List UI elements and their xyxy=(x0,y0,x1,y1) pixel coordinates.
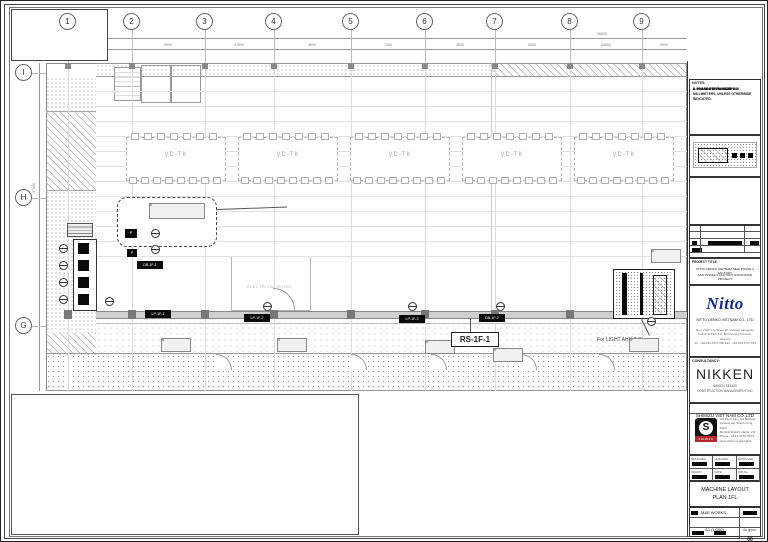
machine-unit xyxy=(532,133,540,140)
info-value-redacted xyxy=(739,462,754,466)
contractor-address: 3rd Floor, Lang Ha Building11/Lang Ha, T… xyxy=(720,417,758,443)
room-b xyxy=(171,65,201,103)
address-line: Tel : +84-650-3757-650 Fax : +84-650-375… xyxy=(693,341,757,345)
key-plan-block xyxy=(740,153,745,158)
machine-unit xyxy=(269,133,277,140)
column-block xyxy=(201,310,209,319)
stair xyxy=(114,67,141,101)
dim-segment: 17000 xyxy=(225,43,253,47)
dim-line-overall xyxy=(59,38,687,39)
grid-bubble-col: 2 xyxy=(123,13,140,30)
address-line: www.shimz.co.jp/english xyxy=(720,439,758,443)
machine-unit xyxy=(170,133,178,140)
note-cell xyxy=(494,349,496,351)
grid-bubble-col: 4 xyxy=(265,13,282,30)
left-stipple-upper xyxy=(46,77,96,111)
machine-unit xyxy=(213,177,221,184)
corridor-lower-line xyxy=(96,323,687,324)
machine-unit xyxy=(625,177,633,184)
work-type: M&E WORKS xyxy=(701,510,726,515)
machine-unit xyxy=(537,177,545,184)
machine-cluster: VD-TK xyxy=(350,137,450,181)
address-line: 11/Lang Ha, Thanh Cong Ward xyxy=(720,421,758,430)
machine-unit xyxy=(657,133,665,140)
consultancy-sub2: CONSTRUCTION MANAGEMENT INC xyxy=(690,389,760,393)
column-block xyxy=(567,63,573,69)
info-value-redacted xyxy=(715,462,730,466)
machine-unit xyxy=(301,177,309,184)
switchgear xyxy=(622,273,627,315)
machine-cluster: VD-TK xyxy=(238,137,338,181)
machine-cluster: VD-TK xyxy=(462,137,562,181)
note-table xyxy=(493,348,523,362)
switch-symbol xyxy=(59,295,68,304)
info-cell: APPROVED xyxy=(737,456,760,468)
machine-unit xyxy=(253,177,261,184)
machine-unit xyxy=(183,133,191,140)
machine-unit xyxy=(477,177,485,184)
note-cell xyxy=(162,339,164,341)
grid-bubble-row: H xyxy=(15,189,32,206)
switch-symbol xyxy=(59,261,68,270)
column-block xyxy=(128,310,136,319)
machine-unit xyxy=(661,177,669,184)
project-name-2: AND PHASE 3 FACTORY EXPANSION PROJECT xyxy=(691,273,759,281)
contractor-box: SHIMIZU VIET NAM CO.,LTD S SHIMIZU 3rd F… xyxy=(689,403,761,455)
machine-unit xyxy=(368,133,376,140)
revision-table: THE APPROVAL xyxy=(689,225,761,258)
switch-symbol xyxy=(496,302,505,311)
machine-unit xyxy=(282,133,290,140)
machine-unit xyxy=(589,177,597,184)
drawing-title-2: PLAN 1FL xyxy=(690,495,760,501)
info-value-redacted xyxy=(692,475,707,479)
note-table xyxy=(629,338,659,352)
info-value-redacted xyxy=(715,475,730,479)
rs-panel-label: RS-1F-1 xyxy=(451,332,499,347)
machine-unit xyxy=(131,133,139,140)
grid-bubble-row: G xyxy=(15,317,32,334)
column-line xyxy=(274,63,275,391)
panel-label: LP-1F-2 xyxy=(244,314,270,322)
cloud-panel: P xyxy=(127,249,137,257)
consultancy-sub1: NIKKEN SEKKEI xyxy=(690,384,760,388)
machine-unit xyxy=(467,133,475,140)
column-block xyxy=(566,310,574,319)
machine-unit xyxy=(256,133,264,140)
column-block xyxy=(639,63,645,69)
column-block xyxy=(129,63,135,69)
sheet-number: 00 xyxy=(747,537,753,542)
drawing-sheet: 96000 ELECTRICAL ROOM xyxy=(0,0,768,542)
switch-symbol xyxy=(151,245,160,254)
panel-stack xyxy=(67,223,93,237)
machine-cluster-label: VD-TK xyxy=(239,152,337,158)
machine-unit xyxy=(353,177,361,184)
cloud-panel: P xyxy=(125,229,137,238)
machine-unit xyxy=(313,177,321,184)
machine-unit xyxy=(377,177,385,184)
info-label: APPROVED xyxy=(738,457,754,461)
grid-bubble-row: I xyxy=(15,64,32,81)
column-block xyxy=(65,63,71,69)
notes-box: NOTES: 1. ALL DIMENSIONS ARE IN MILLIMET… xyxy=(689,79,761,135)
dim-line-segments xyxy=(59,49,687,50)
key-plan-block xyxy=(748,153,753,158)
grid-tick xyxy=(495,30,496,63)
gridline xyxy=(96,121,687,122)
machine-unit xyxy=(501,177,509,184)
machine-unit xyxy=(289,177,297,184)
note-table xyxy=(277,338,307,352)
nikken-logo: NIKKEN xyxy=(690,366,760,382)
machine-unit xyxy=(381,133,389,140)
info-label: DESIGNED xyxy=(691,457,706,461)
machine-unit xyxy=(325,177,333,184)
note-table xyxy=(651,249,681,263)
consultancy-box: CONSULTANCY: NIKKEN NIKKEN SEKKEI CONSTR… xyxy=(689,357,761,403)
machine-unit xyxy=(196,133,204,140)
notes-title: NOTES: xyxy=(692,81,706,85)
note-cell xyxy=(426,341,428,343)
machine-cluster-label: VD-TK xyxy=(127,152,225,158)
note-cell xyxy=(652,250,654,252)
top-band-hatch xyxy=(491,63,687,77)
machine-unit xyxy=(157,133,165,140)
gridline xyxy=(96,91,687,92)
corridor-wall xyxy=(96,311,687,319)
column-line xyxy=(351,63,352,391)
transformer xyxy=(78,260,89,271)
machine-cluster-label: VD-TK xyxy=(463,152,561,158)
machine-unit xyxy=(209,133,217,140)
transformer xyxy=(78,294,89,305)
machine-unit xyxy=(129,177,137,184)
dim-segment: 7400 xyxy=(374,43,402,47)
owner-company: NITTO DENKO VIETNAM CO., LTD xyxy=(690,318,760,323)
machine-unit xyxy=(413,177,421,184)
column-line xyxy=(570,63,571,391)
machine-unit xyxy=(519,133,527,140)
drawing-title-1: MACHINE LAYOUT xyxy=(690,487,760,493)
titleblock-border xyxy=(687,61,688,537)
transformer xyxy=(78,243,89,254)
machine-unit xyxy=(165,177,173,184)
info-label: CHECKED xyxy=(714,457,728,461)
machine-unit xyxy=(545,133,553,140)
machine-unit xyxy=(141,177,149,184)
machine-unit xyxy=(189,177,197,184)
owner-address: No.2 VSIP II-A, Street 30, Vietnam Singa… xyxy=(693,328,757,345)
left-hatch xyxy=(46,111,96,191)
switchgear xyxy=(640,273,643,315)
info-value-redacted xyxy=(692,462,707,466)
machine-unit xyxy=(579,133,587,140)
dim-segment: 9000 xyxy=(650,43,678,47)
machine-unit xyxy=(365,177,373,184)
machine-unit xyxy=(637,177,645,184)
key-plan-highlight xyxy=(698,148,728,163)
machine-unit xyxy=(649,177,657,184)
grid-tick xyxy=(132,30,133,63)
machine-unit xyxy=(394,133,402,140)
dim-line-left xyxy=(39,63,40,391)
grid-tick xyxy=(425,30,426,63)
dim-segment: 9000 xyxy=(518,43,546,47)
note-table xyxy=(161,338,191,352)
machine-unit xyxy=(355,133,363,140)
grid-tick xyxy=(32,198,46,199)
grid-bubble-col: 5 xyxy=(342,13,359,30)
switch-symbol xyxy=(105,297,114,306)
grid-tick xyxy=(205,30,206,63)
machine-unit xyxy=(613,177,621,184)
panel-label: DB-1F-2 xyxy=(479,314,505,322)
machine-unit xyxy=(489,177,497,184)
project-title-label: PROJECT TITLE: xyxy=(692,260,718,264)
column-block xyxy=(348,63,354,69)
column-block xyxy=(202,63,208,69)
dim-left-vertical: 37000 xyxy=(32,183,36,193)
gridline xyxy=(96,256,687,257)
machine-unit xyxy=(433,133,441,140)
column-block xyxy=(492,63,498,69)
grid-tick xyxy=(351,30,352,63)
grid-bubble-col: 7 xyxy=(486,13,503,30)
grid-bubble-col: 1 xyxy=(59,13,76,30)
project-title-box: PROJECT TITLE: NITTO DENKO VIETNAM NEW P… xyxy=(689,258,761,285)
machine-unit xyxy=(425,177,433,184)
gridline xyxy=(96,106,687,107)
machine-unit xyxy=(631,133,639,140)
info-label: DATE xyxy=(714,470,721,474)
machine-unit xyxy=(407,133,415,140)
grid-tick xyxy=(32,326,46,327)
grid-tick xyxy=(570,30,571,63)
dim-segment: (4500) xyxy=(592,43,620,47)
blank-panel xyxy=(11,394,359,535)
room-a xyxy=(141,65,171,103)
switch-symbol xyxy=(59,278,68,287)
machine-unit xyxy=(644,133,652,140)
machine-unit xyxy=(308,133,316,140)
machine-unit xyxy=(241,177,249,184)
machine-cluster-label: VD-TK xyxy=(575,152,673,158)
phase-line xyxy=(491,63,492,311)
switch-symbol xyxy=(151,229,160,238)
panel-label: DB-1F-1 xyxy=(137,261,163,269)
machine-unit xyxy=(549,177,557,184)
column-block xyxy=(347,310,355,319)
machine-unit xyxy=(480,133,488,140)
panel-label: LP-1F-1 xyxy=(145,310,171,318)
machine-unit xyxy=(389,177,397,184)
note-line: 5. PHASE 3 1F FL=+4.50+0.10 xyxy=(693,87,739,92)
machine-cluster: VD-TK xyxy=(574,137,674,181)
machine-unit xyxy=(525,177,533,184)
spare-box xyxy=(689,177,761,225)
note-cell xyxy=(630,339,632,341)
grid-bubble-col: 6 xyxy=(416,13,433,30)
nitto-logo: Nitto xyxy=(690,294,760,314)
panel-label: LP-1F-3 xyxy=(399,315,425,323)
drawing-title-box: MACHINE LAYOUT PLAN 1FL xyxy=(689,481,761,507)
leader-line xyxy=(470,319,471,332)
machine-unit xyxy=(605,133,613,140)
shimizu-logo-text: SHIMIZU xyxy=(695,436,717,442)
info-cell: CHECKED xyxy=(713,456,736,468)
switch-symbol xyxy=(647,317,656,326)
note-cell xyxy=(278,339,280,341)
shimizu-logo: S SHIMIZU xyxy=(695,418,717,442)
info-label: DRAWN xyxy=(691,470,701,474)
column-block xyxy=(271,63,277,69)
machine-unit xyxy=(506,133,514,140)
machine-unit xyxy=(243,133,251,140)
machine-unit xyxy=(513,177,521,184)
bottom-band xyxy=(46,353,687,391)
switch-symbol xyxy=(263,302,272,311)
switch-symbol xyxy=(59,244,68,253)
dim-segment: 4500 xyxy=(446,43,474,47)
address-line: Industrial Park II-A, Binh Duong Provinc… xyxy=(693,332,757,341)
column-block xyxy=(64,310,72,319)
grid-tick xyxy=(32,73,46,74)
machine-cluster-label: VD-TK xyxy=(351,152,449,158)
switch-symbol xyxy=(408,302,417,311)
machine-unit xyxy=(577,177,585,184)
machine-unit xyxy=(420,133,428,140)
grid-bubble-col: 8 xyxy=(561,13,578,30)
owner-box: Nitto NITTO DENKO VIETNAM CO., LTD No.2 … xyxy=(689,285,761,357)
grid-bubble-col: 9 xyxy=(633,13,650,30)
machine-unit xyxy=(437,177,445,184)
transformer xyxy=(78,277,89,288)
machine-unit xyxy=(465,177,473,184)
key-plan-block xyxy=(732,153,737,158)
info-cell: DESIGNED xyxy=(690,456,713,468)
machine-unit xyxy=(277,177,285,184)
info-table: DESIGNEDCHECKEDAPPROVED DRAWNDATEJOB No. xyxy=(689,455,761,481)
machine-unit xyxy=(201,177,209,184)
left-hatch-lower xyxy=(46,333,96,355)
machine-unit xyxy=(153,177,161,184)
machine-unit xyxy=(401,177,409,184)
switchgear-hatch xyxy=(653,275,667,315)
drawing-meta-box: M&E WORKS A1 (1/100) As appro. 00 xyxy=(689,507,761,537)
column-block xyxy=(270,310,278,319)
dim-segment: 9000 xyxy=(154,43,182,47)
grid-bubble-col: 3 xyxy=(196,13,213,30)
machine-unit xyxy=(618,133,626,140)
machine-unit xyxy=(321,133,329,140)
machine-unit xyxy=(295,133,303,140)
info-value-redacted xyxy=(739,475,754,479)
machine-unit xyxy=(601,177,609,184)
dim-segment: 4500 xyxy=(298,43,326,47)
consultancy-label: CONSULTANCY: xyxy=(692,359,720,363)
info-label: JOB No. xyxy=(738,470,749,474)
machine-unit xyxy=(144,133,152,140)
cloud-note-table xyxy=(149,203,205,219)
dim-overall: 96000 xyxy=(587,32,617,36)
key-plan xyxy=(689,135,761,177)
column-block xyxy=(422,63,428,69)
grid-tick xyxy=(274,30,275,63)
electrical-room-label: ELECTRICAL ROOM xyxy=(247,284,291,289)
machine-unit xyxy=(592,133,600,140)
machine-unit xyxy=(265,177,273,184)
machine-cluster: VD-TK xyxy=(126,137,226,181)
machine-unit xyxy=(493,133,501,140)
machine-unit xyxy=(177,177,185,184)
grid-tick xyxy=(642,30,643,63)
